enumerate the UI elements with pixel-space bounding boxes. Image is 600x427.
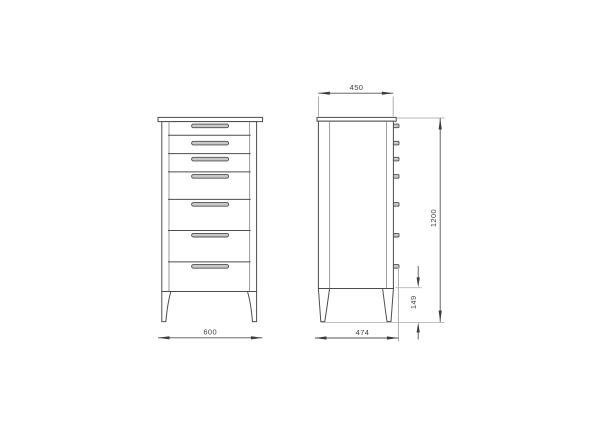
dim-arrowhead: [439, 311, 442, 323]
front-left-leg: [162, 292, 171, 322]
dimension-label-front-width: 600: [203, 328, 217, 337]
drawer-handle-profile: [393, 203, 399, 207]
drawer-handle-profile: [393, 141, 399, 145]
side-back-leg: [318, 289, 329, 322]
drawer-handle: [192, 124, 229, 128]
front-view: [158, 117, 263, 321]
dim-arrowhead: [158, 336, 170, 339]
drawer-handle-profile: [393, 124, 399, 128]
dim-arrowhead: [315, 336, 327, 339]
front-right-leg: [248, 292, 257, 322]
front-tabletop: [158, 117, 263, 121]
drawer-handle: [192, 203, 229, 207]
dim-arrowhead: [318, 92, 330, 95]
dim-arrowhead: [251, 336, 263, 339]
side-tabletop: [317, 117, 396, 121]
dimension-leg-height: 149: [396, 266, 422, 340]
dim-arrowhead: [387, 336, 399, 339]
drawer-handle: [192, 157, 229, 161]
drawer-handle: [192, 141, 229, 145]
dim-arrowhead: [417, 277, 420, 287]
dim-arrowhead: [439, 118, 442, 130]
drawing-sheet: 600 450 474: [0, 0, 600, 427]
technical-drawing-canvas: 600 450 474: [0, 0, 600, 427]
side-view: [317, 117, 399, 321]
dimension-label-overall-height: 1200: [429, 209, 438, 227]
drawer-handle: [192, 175, 229, 179]
drawer-handle-profile: [393, 175, 399, 179]
dimension-label-bottom-depth: 474: [356, 328, 370, 337]
dimension-label-top-depth: 450: [350, 83, 364, 92]
dim-arrowhead: [417, 322, 420, 332]
dimension-front-width: 600: [158, 328, 262, 340]
drawer-handle-profile: [393, 157, 399, 161]
drawer-handle: [192, 265, 229, 269]
side-front-leg: [383, 289, 394, 322]
dim-arrowhead: [382, 92, 394, 95]
dimension-top-depth: 450: [318, 83, 393, 117]
drawer-handle-profile: [393, 233, 399, 237]
dimension-label-leg-height: 149: [409, 295, 418, 309]
drawer-handle: [192, 233, 229, 237]
